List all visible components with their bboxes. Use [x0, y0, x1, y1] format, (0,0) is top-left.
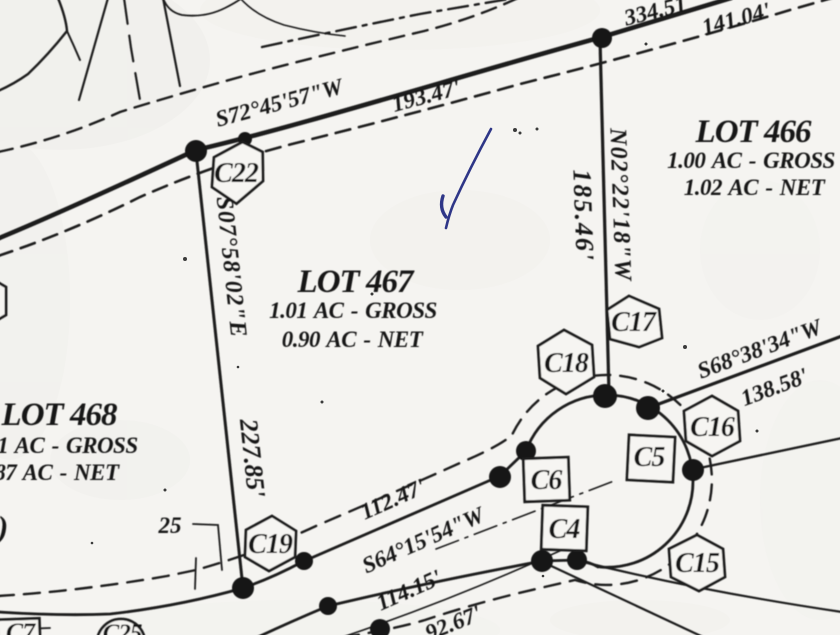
svg-text:LOT 466: LOT 466	[695, 114, 812, 150]
svg-text:C18: C18	[544, 348, 589, 379]
svg-text:C22: C22	[214, 158, 259, 189]
svg-text:1.01 AC - GROSS: 1.01 AC - GROSS	[269, 298, 437, 323]
svg-text:C5: C5	[634, 442, 666, 473]
svg-text:C7: C7	[6, 618, 36, 635]
svg-text:185.46': 185.46'	[567, 169, 599, 263]
svg-text:0.87 AC - NET: 0.87 AC - NET	[0, 460, 120, 485]
svg-text:C25: C25	[103, 620, 142, 635]
svg-text:C16: C16	[690, 412, 735, 443]
svg-text:LOT 467: LOT 467	[297, 264, 415, 300]
svg-text:C6: C6	[531, 465, 563, 496]
svg-text:C4: C4	[549, 514, 581, 545]
svg-text:C17: C17	[611, 307, 657, 338]
svg-text:0.90 AC - NET: 0.90 AC - NET	[282, 327, 424, 352]
svg-text:1.00 AC - GROSS: 1.00 AC - GROSS	[667, 148, 835, 173]
svg-text:1.02 AC - NET: 1.02 AC - NET	[684, 175, 826, 200]
svg-text:C15: C15	[675, 548, 720, 579]
svg-text:25: 25	[158, 513, 182, 538]
svg-text:N02°22'18"W: N02°22'18"W	[604, 127, 635, 283]
svg-text:C19: C19	[248, 529, 293, 560]
svg-text:1.01 AC - GROSS: 1.01 AC - GROSS	[0, 433, 138, 458]
svg-text:): )	[0, 509, 8, 545]
svg-text:LOT 468: LOT 468	[1, 397, 117, 433]
